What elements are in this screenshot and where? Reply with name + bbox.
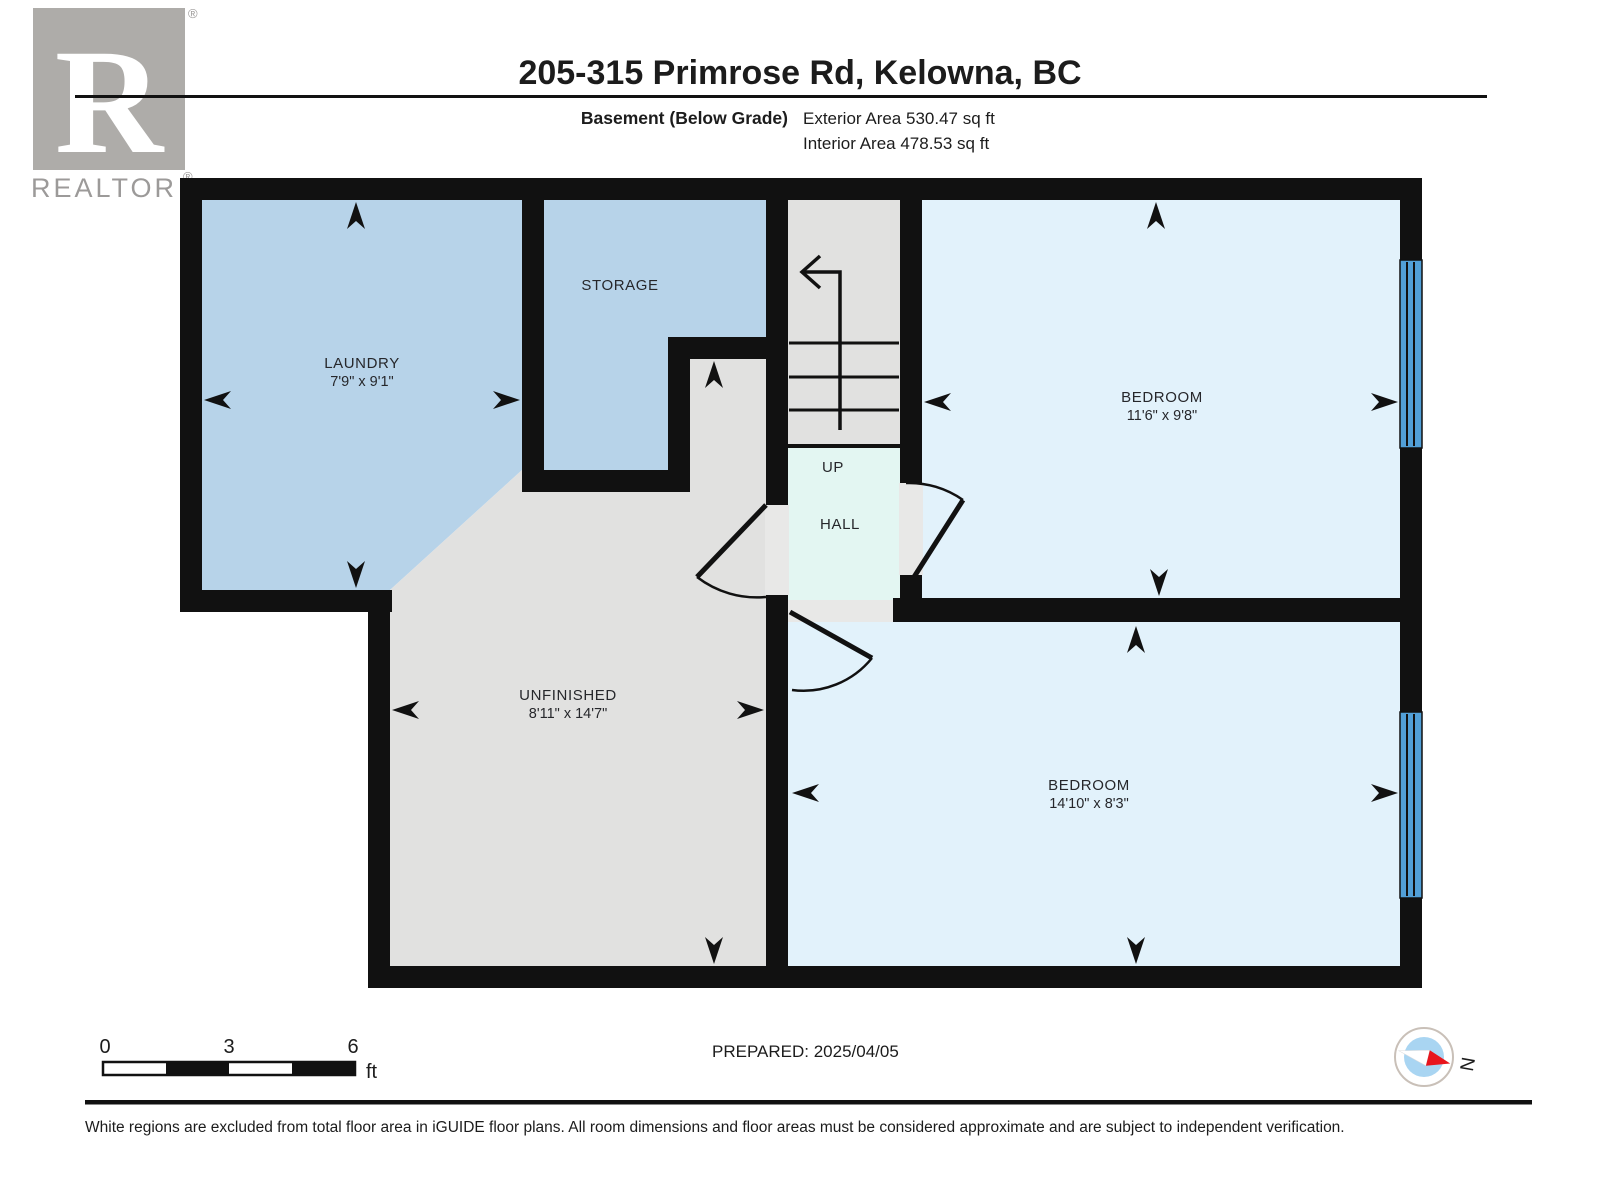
compass-north-icon: N	[1395, 1028, 1478, 1086]
laundry-label: LAUNDRY	[324, 355, 400, 372]
wall-laundry-storage	[522, 178, 544, 492]
scale-mid: 3	[223, 1036, 234, 1058]
bedroom1-window	[1400, 260, 1422, 448]
bedroom1-door-opening	[899, 483, 923, 575]
realtor-logo-word: REALTOR	[31, 173, 177, 203]
exterior-area: Exterior Area 530.47 sq ft	[803, 109, 995, 128]
floorplan-canvas: R ® REALTOR ® 205-315 Primrose Rd, Kelow…	[0, 0, 1600, 1200]
wall-top	[180, 178, 1422, 200]
wall-storage-notch-v	[668, 337, 690, 492]
bedroom2-dims: 14'10" x 8'3"	[1049, 796, 1129, 812]
unfinished-label: UNFINISHED	[519, 687, 617, 704]
hall-label: HALL	[820, 516, 860, 533]
realtor-logo-letter: R	[55, 19, 165, 185]
title-divider	[75, 95, 1487, 98]
stairs-up-label: UP	[822, 459, 844, 476]
hall-door-opening	[765, 505, 789, 595]
storage-label: STORAGE	[581, 277, 658, 294]
wall-hall-left-upper	[766, 178, 788, 505]
wall-left-lower	[368, 590, 390, 988]
scale-start: 0	[99, 1036, 110, 1058]
scale-bar: 0 3 6 ft	[99, 1036, 377, 1083]
wall-bedroom-divider	[893, 598, 1422, 622]
registered-icon: ®	[188, 6, 198, 21]
laundry-dims: 7'9" x 9'1"	[330, 374, 393, 390]
floor-label: Basement (Below Grade)	[581, 108, 788, 128]
scale-end: 6	[347, 1036, 358, 1058]
scale-segment	[292, 1062, 355, 1075]
page-title: 205-315 Primrose Rd, Kelowna, BC	[518, 54, 1081, 92]
bedroom2-label: BEDROOM	[1048, 777, 1130, 794]
wall-bedroom2-left	[766, 595, 788, 988]
bedroom1-dims: 11'6" x 9'8"	[1127, 408, 1197, 424]
realtor-logo: R ® REALTOR ®	[31, 6, 198, 203]
wall-laundry-bottom	[180, 590, 392, 612]
interior-area: Interior Area 478.53 sq ft	[803, 134, 989, 153]
bedroom1-label: BEDROOM	[1121, 389, 1203, 406]
prepared-date: PREPARED: 2025/04/05	[712, 1042, 899, 1061]
floorplan-page: R ® REALTOR ® 205-315 Primrose Rd, Kelow…	[0, 0, 1600, 1200]
scale-segment	[166, 1062, 229, 1075]
bedroom2-room	[788, 622, 1400, 966]
footer-divider	[85, 1100, 1532, 1105]
scale-unit: ft	[366, 1061, 378, 1083]
disclaimer-text: White regions are excluded from total fl…	[85, 1119, 1345, 1136]
compass-n-label: N	[1455, 1055, 1478, 1072]
wall-bottom	[368, 966, 1422, 988]
unfinished-dims: 8'11" x 14'7"	[529, 706, 607, 722]
bedroom2-window	[1400, 712, 1422, 898]
wall-stair-bedroom1	[900, 178, 922, 483]
wall-storage-bottom	[522, 470, 690, 492]
wall-left-upper	[180, 178, 202, 612]
